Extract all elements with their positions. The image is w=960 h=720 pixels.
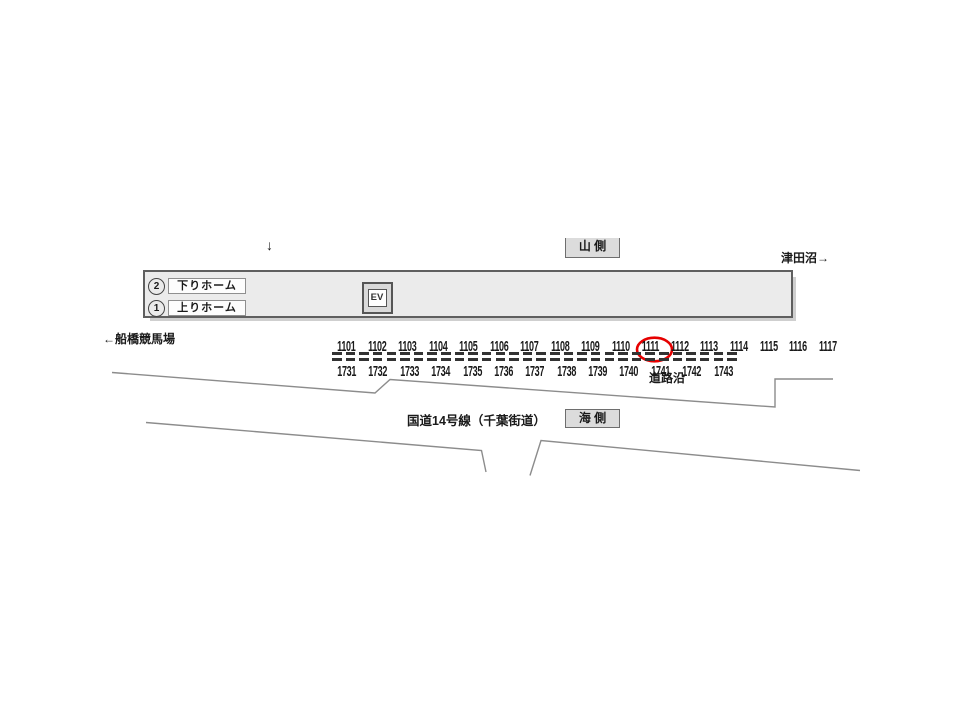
board-number-cell: 1108 bbox=[545, 338, 576, 351]
board-number: 1736 bbox=[494, 365, 513, 378]
board-number: 1735 bbox=[463, 365, 482, 378]
board-number-cell: 1115 bbox=[754, 338, 784, 351]
board-number-row-top: 1101110211031104110511061107110811091110… bbox=[331, 338, 738, 351]
board-number-cell: 1738 bbox=[551, 363, 582, 376]
board-dash-mark bbox=[441, 352, 451, 361]
road-lower-edge-right-line bbox=[530, 441, 860, 476]
board-number-cell: 1735 bbox=[457, 363, 488, 376]
board-number-cell: 1743 bbox=[708, 363, 739, 376]
board-number-cell: 1112 bbox=[665, 338, 695, 351]
board-dash-mark bbox=[714, 352, 724, 361]
board-number-cell: 1104 bbox=[423, 338, 454, 351]
board-number: 1117 bbox=[819, 340, 837, 353]
board-number-cell: 1113 bbox=[694, 338, 724, 351]
platform-2-label: 下りホーム bbox=[168, 278, 246, 294]
board-dash-mark bbox=[659, 352, 669, 361]
board-dash-mark bbox=[482, 352, 492, 361]
board-number-row-bottom: 1731173217331734173517361737173817391740… bbox=[331, 363, 661, 376]
board-dash-mark bbox=[468, 352, 478, 361]
next-station-left-label: ←船橋競馬場 bbox=[103, 330, 175, 347]
board-dash-mark bbox=[496, 352, 506, 361]
board-number: 1734 bbox=[431, 365, 450, 378]
board-number: 1740 bbox=[620, 365, 639, 378]
board-number-cell: 1114 bbox=[724, 338, 754, 351]
board-dash-mark bbox=[645, 352, 655, 361]
board-number-cell: 1736 bbox=[488, 363, 519, 376]
board-number: 1739 bbox=[588, 365, 607, 378]
board-number-cell: 1732 bbox=[362, 363, 393, 376]
down-arrow-mark: ↓ bbox=[266, 237, 273, 253]
board-dash-mark bbox=[373, 352, 383, 361]
platform-1-number-badge: 1 bbox=[148, 300, 165, 317]
board-number-cell: 1111 bbox=[636, 338, 665, 351]
board-dash-mark bbox=[700, 352, 710, 361]
board-number: 1738 bbox=[557, 365, 576, 378]
board-number-cell: 1109 bbox=[575, 338, 606, 351]
board-dash-mark bbox=[414, 352, 424, 361]
board-number: 1742 bbox=[682, 365, 701, 378]
board-dash-mark bbox=[400, 352, 410, 361]
road-name-label: 国道14号線（千葉街道） bbox=[407, 410, 546, 429]
board-number-cell: 1106 bbox=[484, 338, 515, 351]
board-number: 1737 bbox=[526, 365, 545, 378]
board-dash-mark bbox=[632, 352, 642, 361]
board-dash-mark bbox=[727, 352, 737, 361]
board-dash-mark bbox=[509, 352, 519, 361]
board-number-cell: 1105 bbox=[453, 338, 484, 351]
board-number-cell: 1740 bbox=[613, 363, 644, 376]
board-dash-mark bbox=[332, 352, 342, 361]
road-lower-edge-left-line bbox=[146, 423, 486, 473]
board-dash-row bbox=[332, 352, 737, 361]
roadside-label: 道路沿 bbox=[649, 369, 685, 386]
board-dash-mark bbox=[605, 352, 615, 361]
board-number-cell: 1102 bbox=[362, 338, 393, 351]
board-number-cell: 1737 bbox=[519, 363, 550, 376]
board-number-cell: 1734 bbox=[425, 363, 456, 376]
board-number-cell: 1116 bbox=[783, 338, 813, 351]
board-number: 1731 bbox=[337, 365, 356, 378]
next-station-right-label: 津田沼→ bbox=[781, 249, 829, 266]
elevator-box: EV bbox=[362, 282, 393, 314]
board-dash-mark bbox=[673, 352, 683, 361]
station-ad-map: 2 下りホーム 1 上りホーム EV ↓ 山 側 津田沼→ ←船橋競馬場 110… bbox=[0, 0, 960, 720]
board-number: 1743 bbox=[714, 365, 733, 378]
board-dash-mark bbox=[618, 352, 628, 361]
platform-2-number-badge: 2 bbox=[148, 278, 165, 295]
board-number-cell: 1739 bbox=[582, 363, 613, 376]
mountain-side-label: 山 側 bbox=[565, 238, 620, 258]
board-dash-mark bbox=[686, 352, 696, 361]
board-dash-mark bbox=[591, 352, 601, 361]
board-number: 1733 bbox=[400, 365, 419, 378]
elevator-label: EV bbox=[368, 289, 387, 307]
board-dash-mark bbox=[577, 352, 587, 361]
board-number: 1115 bbox=[760, 340, 778, 353]
board-number: 1116 bbox=[789, 340, 807, 353]
board-dash-mark bbox=[564, 352, 574, 361]
board-number-cell: 1110 bbox=[606, 338, 636, 351]
board-number-cell: 1117 bbox=[813, 338, 843, 351]
board-dash-mark bbox=[523, 352, 533, 361]
board-dash-mark bbox=[427, 352, 437, 361]
sea-side-label: 海 側 bbox=[565, 409, 620, 428]
board-dash-mark bbox=[550, 352, 560, 361]
board-number-cell: 1731 bbox=[331, 363, 362, 376]
board-dash-mark bbox=[359, 352, 369, 361]
platform-1-label: 上りホーム bbox=[168, 300, 246, 316]
board-dash-mark bbox=[346, 352, 356, 361]
board-dash-mark bbox=[455, 352, 465, 361]
board-number-cell: 1733 bbox=[394, 363, 425, 376]
board-number: 1732 bbox=[369, 365, 388, 378]
board-dash-mark bbox=[387, 352, 397, 361]
mountain-side-label-clip: 山 側 bbox=[563, 238, 623, 258]
board-dash-mark bbox=[536, 352, 546, 361]
board-number-cell: 1103 bbox=[392, 338, 423, 351]
board-number-cell: 1101 bbox=[331, 338, 362, 351]
board-number-cell: 1107 bbox=[514, 338, 545, 351]
